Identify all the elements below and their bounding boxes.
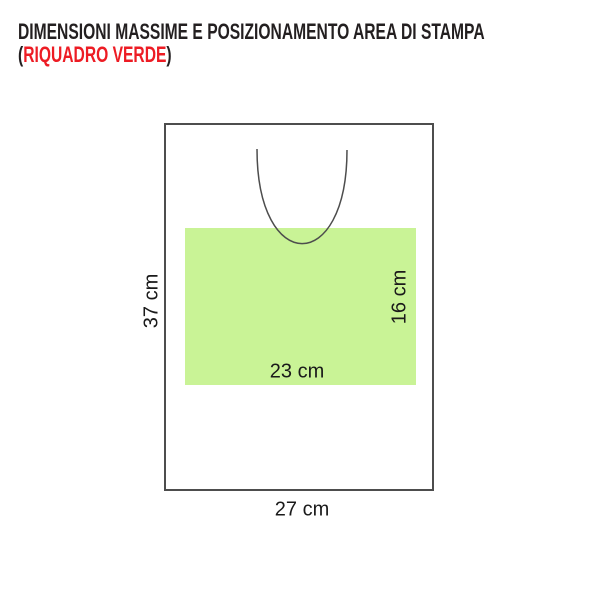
title-line-1: DIMENSIONI MASSIME E POSIZIONAMENTO AREA…	[18, 20, 600, 43]
title-line-2: (RIQUADRO VERDE)	[18, 43, 600, 66]
bag-height-dimension-label: 37 cm	[141, 274, 164, 328]
bag-width-dimension-label: 27 cm	[275, 499, 329, 522]
print-area-height-dimension-label: 16 cm	[389, 270, 412, 324]
print-area-width-dimension-label: 23 cm	[270, 361, 324, 384]
title-paren-close: )	[166, 42, 171, 67]
page-title: DIMENSIONI MASSIME E POSIZIONAMENTO AREA…	[18, 20, 600, 66]
print-area-infographic: DIMENSIONI MASSIME E POSIZIONAMENTO AREA…	[0, 0, 600, 600]
title-highlight-riquadro-verde: RIQUADRO VERDE	[23, 42, 166, 67]
